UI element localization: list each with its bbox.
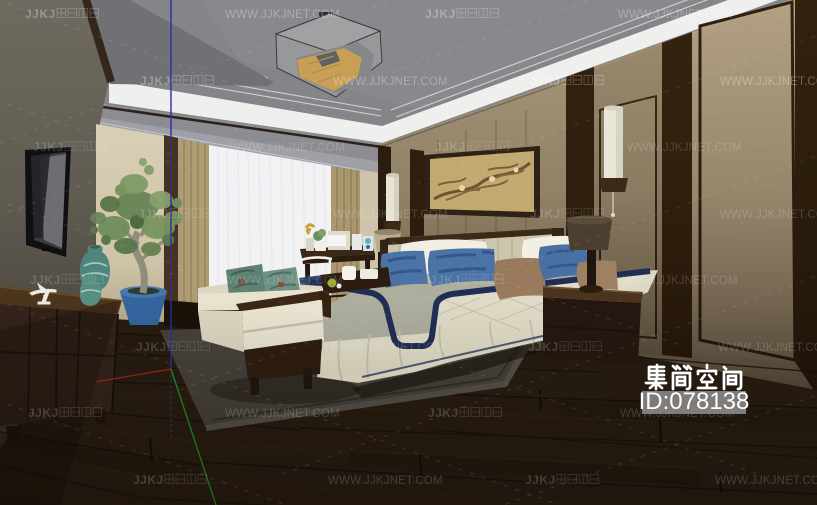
svg-text:ID:078138: ID:078138 [639, 388, 750, 415]
